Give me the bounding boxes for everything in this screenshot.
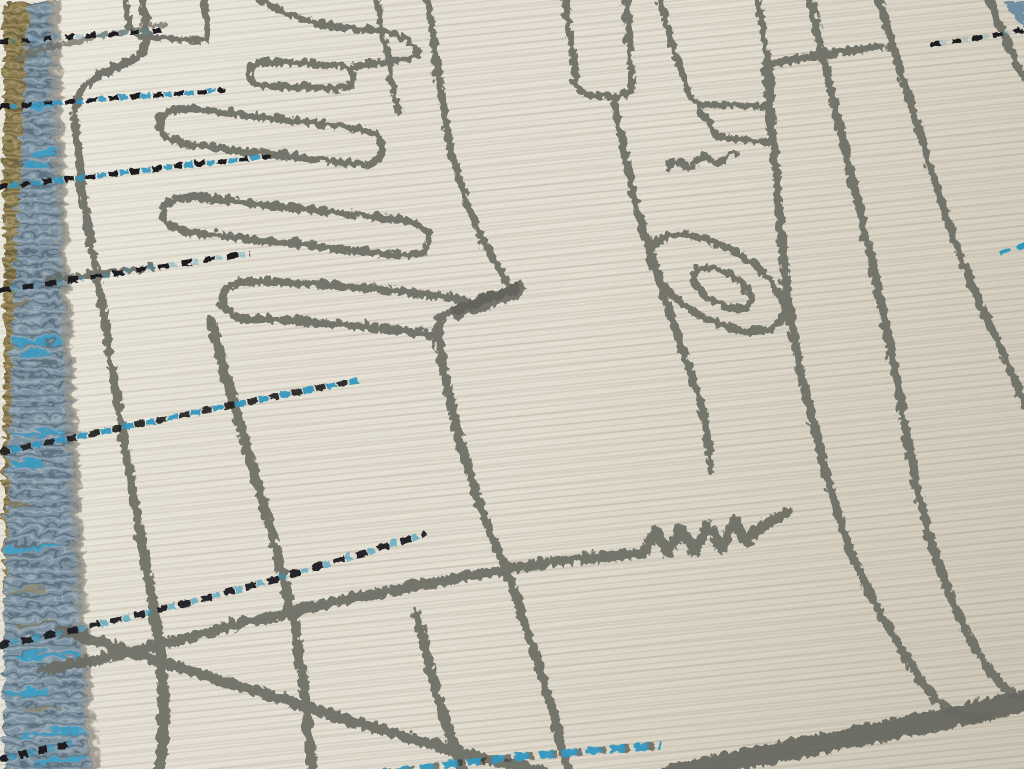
wool-grain-overlay [0, 0, 1024, 769]
rug-photograph: Cream wool rug with charcoal abstract co… [0, 0, 1024, 769]
rug-drawing [0, 0, 1024, 769]
